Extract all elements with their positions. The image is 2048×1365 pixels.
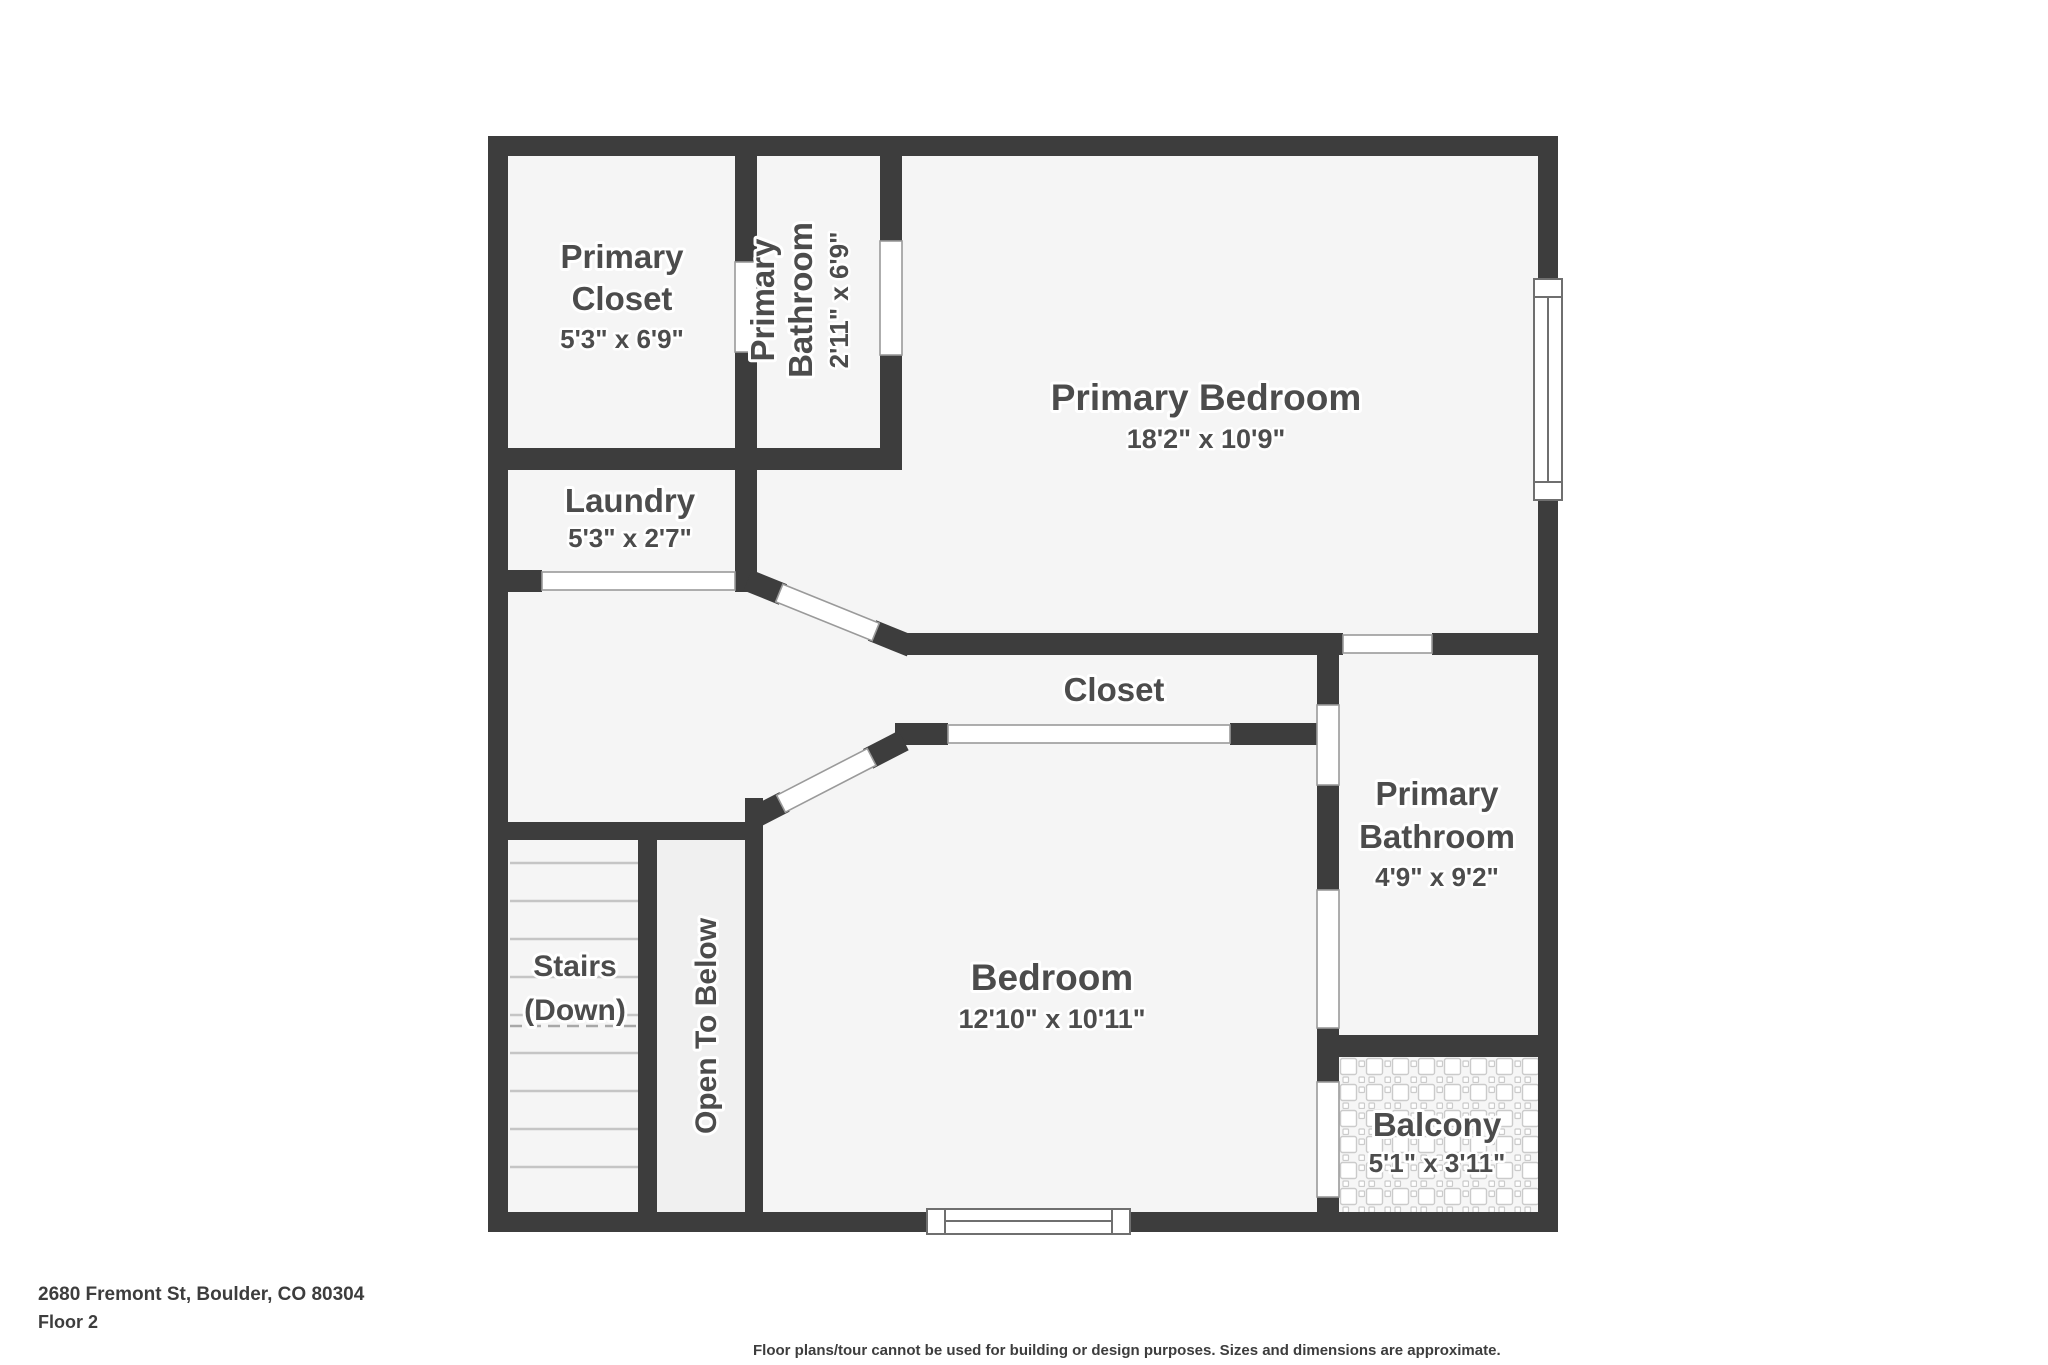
- room-balcony: Balcony 5'1" x 3'11": [1369, 1106, 1506, 1178]
- door-laundry: [542, 572, 735, 590]
- footer-floor-label: Floor 2: [38, 1312, 98, 1333]
- wall: [1317, 785, 1339, 890]
- door-bedroom-to-bathroom: [1317, 890, 1339, 1028]
- wall: [735, 352, 757, 448]
- room-label-primary-bathroom-top-line1: Primary: [744, 238, 781, 362]
- wall: [880, 156, 902, 241]
- room-label-closet: Closet: [1064, 671, 1165, 708]
- room-label-primary-bathroom-right-line2: Bathroom: [1359, 818, 1515, 855]
- footer-address: 2680 Fremont St, Boulder, CO 80304: [38, 1284, 364, 1306]
- wall: [488, 136, 508, 1232]
- room-label-stairs-line2: (Down): [524, 994, 626, 1027]
- wall: [508, 822, 763, 840]
- room-bedroom: Bedroom 12'10" x 10'11": [958, 957, 1145, 1034]
- room-dims-bedroom: 12'10" x 10'11": [958, 1004, 1145, 1034]
- room-label-primary-bathroom-right-line1: Primary: [1376, 775, 1500, 812]
- room-label-primary-bedroom: Primary Bedroom: [1051, 377, 1362, 418]
- door-closet-sliding: [948, 725, 1230, 743]
- window-bedroom-bottom: [927, 1209, 1130, 1234]
- room-label-balcony: Balcony: [1373, 1106, 1502, 1143]
- door-bathroom-upper: [1317, 705, 1339, 785]
- room-dims-laundry: 5'3" x 2'7": [568, 523, 692, 553]
- room-label-stairs-line1: Stairs: [533, 950, 616, 983]
- footer-disclaimer: Floor plans/tour cannot be used for buil…: [753, 1342, 1501, 1359]
- floor-plan-page: Primary Closet 5'3" x 6'9" Primary Bathr…: [0, 0, 2048, 1365]
- wall: [1317, 633, 1339, 705]
- wall: [905, 633, 1343, 655]
- room-primary-bathroom-right: Primary Bathroom 4'9" x 9'2": [1359, 775, 1515, 892]
- room-label-primary-closet-line2: Closet: [572, 280, 673, 317]
- wall: [508, 570, 542, 592]
- door-primary-bedroom-to-bathroom: [1343, 635, 1432, 653]
- wall: [1230, 723, 1317, 745]
- wall: [638, 822, 657, 1212]
- room-dims-primary-bedroom: 18'2" x 10'9": [1127, 424, 1286, 454]
- room-label-laundry: Laundry: [565, 482, 696, 519]
- room-label-bedroom: Bedroom: [971, 957, 1133, 998]
- wall: [1317, 1035, 1558, 1057]
- room-dims-primary-bathroom-right: 4'9" x 9'2": [1375, 862, 1499, 892]
- door-primary-bathroom-top: [880, 241, 902, 355]
- room-primary-bathroom-top: Primary Bathroom 2'11" x 6'9": [744, 222, 854, 378]
- window-primary-bedroom-right: [1534, 279, 1562, 500]
- wall: [745, 798, 763, 1212]
- floor-plan-drawing: Primary Closet 5'3" x 6'9" Primary Bathr…: [0, 0, 2048, 1365]
- wall: [508, 448, 902, 470]
- room-dims-primary-bathroom-top: 2'11" x 6'9": [824, 232, 854, 369]
- room-laundry: Laundry 5'3" x 2'7": [565, 482, 696, 553]
- room-dims-balcony: 5'1" x 3'11": [1369, 1148, 1506, 1178]
- room-label-primary-bathroom-top-line2: Bathroom: [782, 222, 819, 378]
- room-open-to-below: Open To Below: [690, 917, 723, 1134]
- wall: [488, 136, 1558, 156]
- wall: [880, 355, 902, 448]
- room-closet: Closet: [1064, 671, 1165, 708]
- room-label-open-to-below: Open To Below: [690, 917, 723, 1134]
- wall: [1432, 633, 1538, 655]
- wall: [1317, 1197, 1339, 1232]
- door-balcony: [1317, 1082, 1339, 1197]
- room-dims-primary-closet: 5'3" x 6'9": [560, 324, 684, 354]
- room-primary-closet: Primary Closet 5'3" x 6'9": [560, 238, 684, 354]
- room-label-primary-closet-line1: Primary: [561, 238, 685, 275]
